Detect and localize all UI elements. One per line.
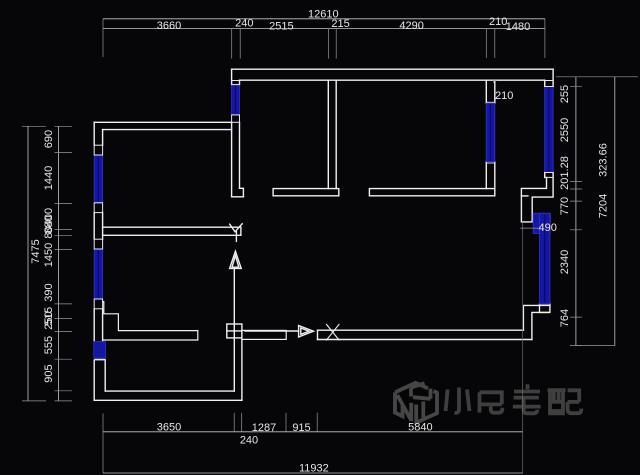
svg-text:250: 250 (43, 311, 55, 329)
svg-text:323.66: 323.66 (598, 143, 610, 177)
svg-text:690: 690 (43, 130, 55, 148)
svg-text:3660: 3660 (157, 20, 181, 32)
svg-text:2550: 2550 (559, 118, 571, 142)
svg-text:7204: 7204 (598, 194, 610, 218)
svg-text:3650: 3650 (157, 422, 181, 434)
svg-text:11932: 11932 (299, 463, 329, 475)
svg-text:255: 255 (559, 85, 571, 103)
svg-text:201.28: 201.28 (559, 156, 571, 190)
svg-text:1450: 1450 (43, 243, 55, 267)
svg-text:240: 240 (235, 17, 253, 29)
svg-text:210: 210 (489, 16, 507, 28)
svg-text:915: 915 (292, 422, 310, 434)
svg-text:1287: 1287 (252, 422, 276, 434)
svg-text:2515: 2515 (269, 21, 293, 33)
svg-text:905: 905 (43, 364, 55, 382)
svg-text:1480: 1480 (506, 21, 530, 33)
svg-text:240: 240 (240, 434, 258, 446)
svg-text:390: 390 (43, 283, 55, 301)
svg-text:1440: 1440 (43, 166, 55, 190)
svg-text:210: 210 (495, 90, 513, 102)
svg-text:490: 490 (539, 222, 557, 234)
svg-text:5840: 5840 (408, 422, 432, 434)
svg-text:4290: 4290 (399, 20, 423, 32)
svg-text:770: 770 (559, 197, 571, 215)
svg-text:215: 215 (331, 18, 349, 30)
svg-text:764: 764 (559, 309, 571, 327)
svg-text:80: 80 (43, 226, 55, 238)
svg-text:2340: 2340 (559, 250, 571, 274)
svg-text:7475: 7475 (30, 239, 42, 263)
svg-text:555: 555 (43, 336, 55, 354)
